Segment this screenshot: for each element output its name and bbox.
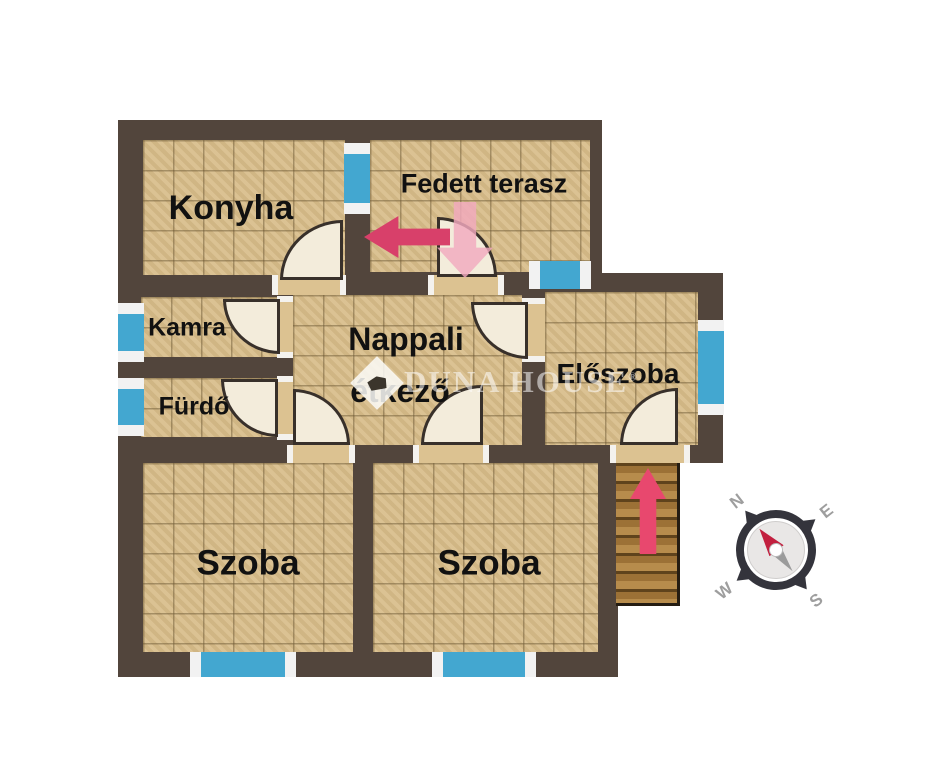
opening-furdo-door: [277, 376, 293, 440]
window-kamra-left: [118, 303, 144, 362]
window-konyha-terasz: [344, 143, 370, 214]
floor-plan: Konyha Fedett terasz Kamra Fürdő Nappali…: [0, 0, 934, 768]
stairs: [616, 463, 680, 606]
window-szoba-right-bottom: [432, 652, 536, 677]
window-eloszoba-right: [698, 320, 724, 415]
opening-szoba-right-door: [413, 445, 489, 463]
label-nappali: Nappali: [348, 323, 464, 355]
opening-szoba-left-door: [287, 445, 355, 463]
opening-terasz-door: [428, 275, 504, 295]
label-szoba-left: Szoba: [196, 546, 299, 581]
compass-label-w: W: [712, 579, 737, 605]
watermark-logo-icon: [350, 356, 404, 410]
watermark: DUNA HOUSE®: [352, 358, 692, 408]
window-furdo-left: [118, 378, 144, 436]
compass-label-s: S: [806, 589, 827, 612]
label-konyha: Konyha: [169, 191, 294, 225]
compass: N E S W: [695, 469, 858, 632]
label-fedett-terasz: Fedett terasz: [401, 171, 568, 198]
window-terasz-bottom: [529, 261, 591, 289]
opening-stairs-door: [610, 445, 690, 463]
label-furdo: Fürdő: [159, 395, 230, 420]
watermark-logo-glyph: [366, 374, 388, 392]
watermark-text: DUNA HOUSE®: [404, 364, 639, 400]
label-kamra: Kamra: [148, 316, 226, 341]
label-szoba-right: Szoba: [437, 546, 540, 581]
stairs-up-arrow-icon: [630, 468, 666, 554]
window-szoba-left-bottom: [190, 652, 296, 677]
compass-label-e: E: [816, 500, 837, 523]
